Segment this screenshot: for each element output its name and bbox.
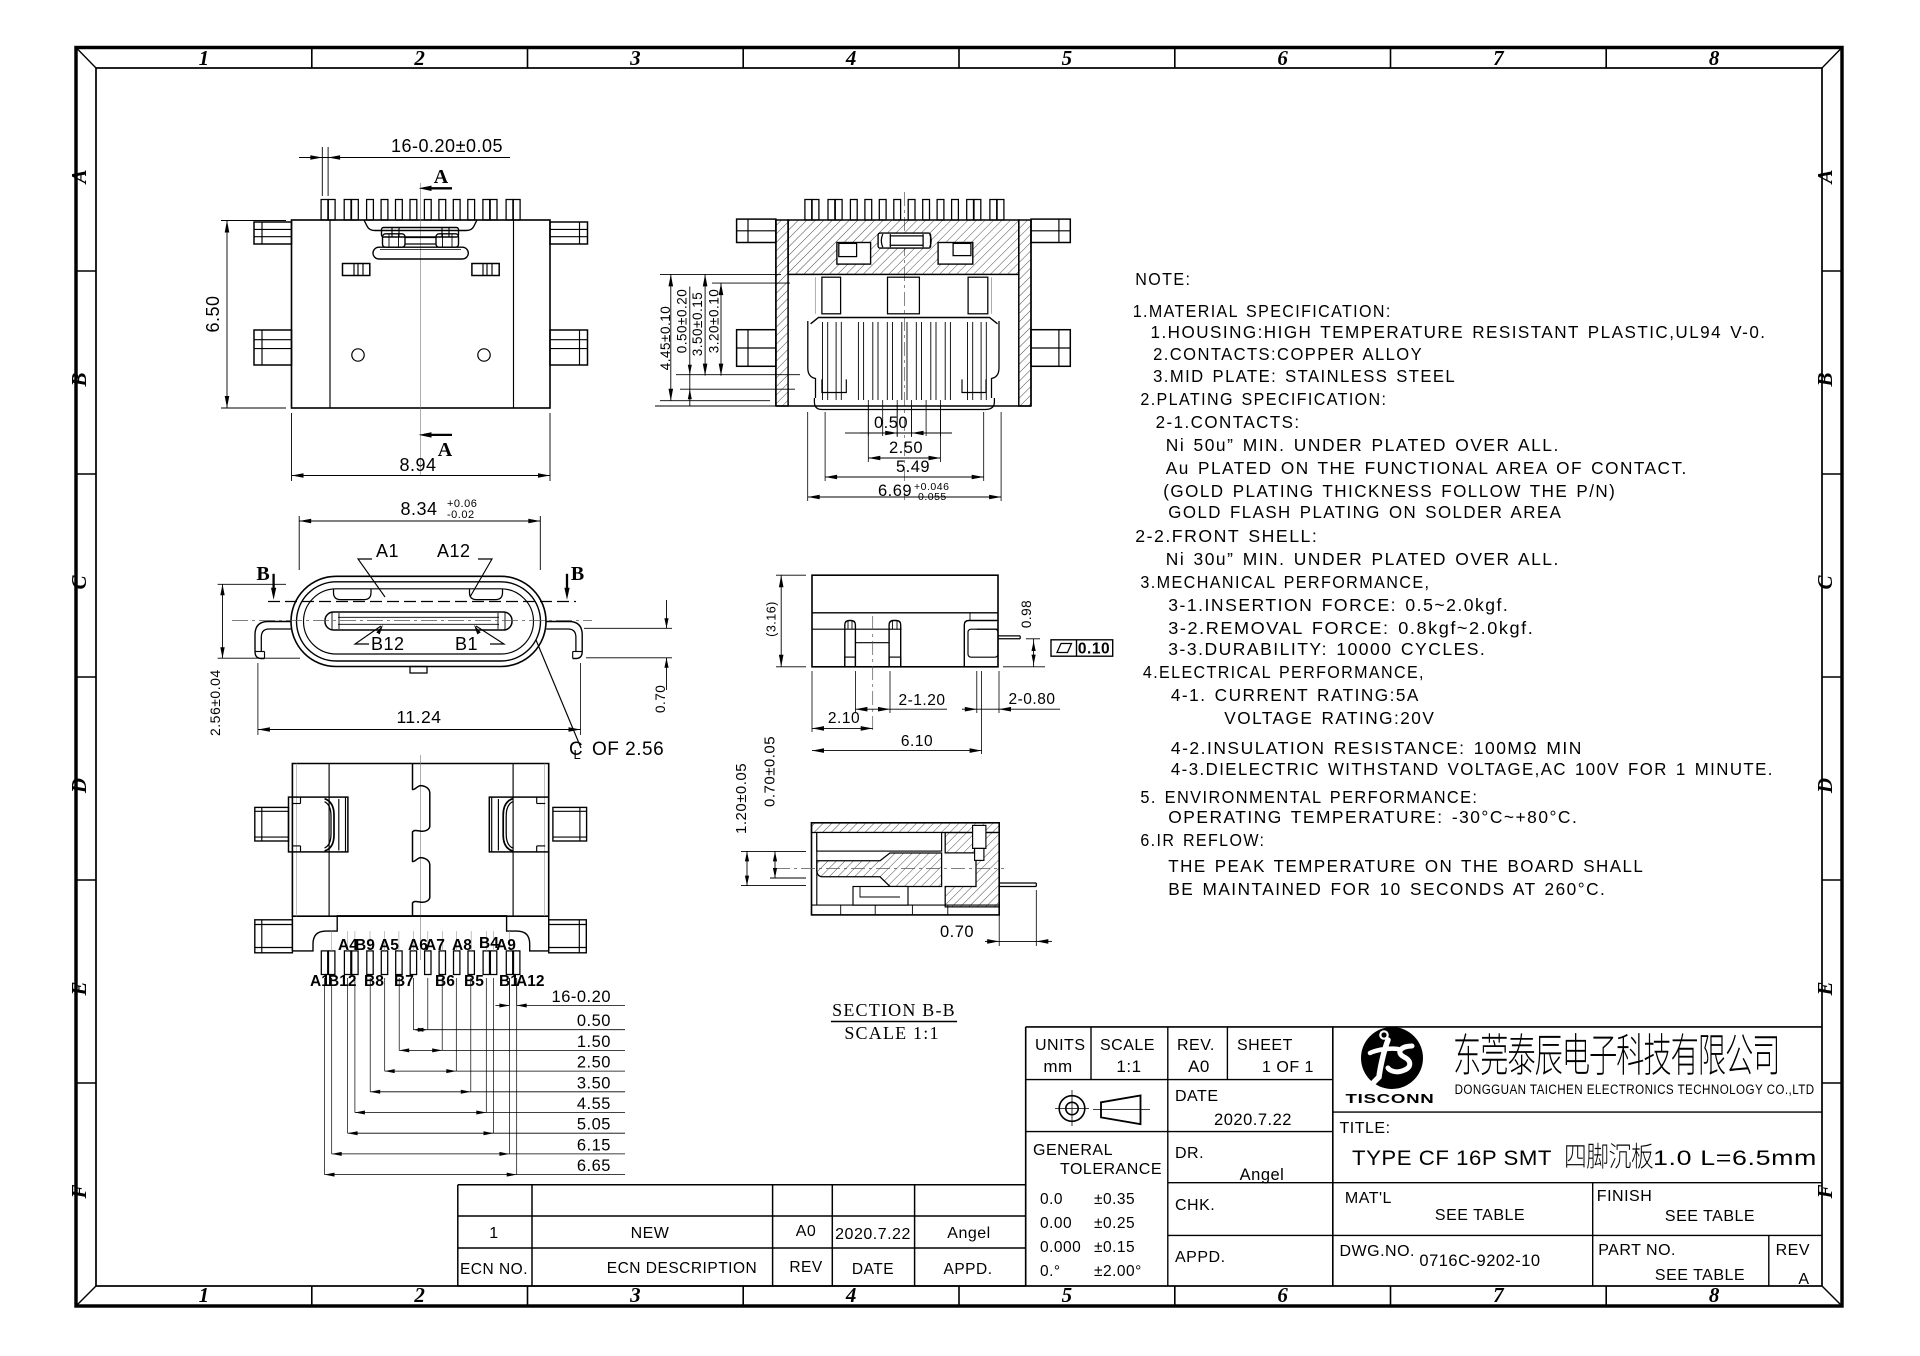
svg-text:0.000: 0.000 <box>1040 1239 1081 1256</box>
svg-text:1 OF 1: 1 OF 1 <box>1262 1059 1314 1076</box>
svg-text:6.50: 6.50 <box>203 295 223 332</box>
svg-text:OPERATING TEMPERATURE: -30°C: OPERATING TEMPERATURE: -30°C~+80°C. <box>1168 807 1578 827</box>
svg-text:0.70: 0.70 <box>653 685 668 713</box>
svg-text:2-2.FRONT SHELL:: 2-2.FRONT SHELL: <box>1135 526 1318 546</box>
svg-text:SEE TABLE: SEE TABLE <box>1655 1267 1745 1284</box>
svg-text:A5: A5 <box>379 937 399 954</box>
svg-text:8.34: 8.34 <box>400 499 437 519</box>
svg-text:5: 5 <box>1062 1283 1073 1307</box>
svg-text:APPD.: APPD. <box>943 1261 992 1278</box>
svg-text:F: F <box>1813 1184 1837 1199</box>
svg-text:3-2.REMOVAL FORCE: 0.8kgf~2.: 3-2.REMOVAL FORCE: 0.8kgf~2.0kgf. <box>1168 618 1534 638</box>
svg-text:UNITS: UNITS <box>1035 1037 1086 1054</box>
svg-text:Au PLATED ON THE FUNCTIONA: Au PLATED ON THE FUNCTIONAL AREA OF CONT… <box>1166 458 1688 478</box>
svg-text:BE MAINTAINED FOR 10 SECON: BE MAINTAINED FOR 10 SECONDS AT 260°C. <box>1168 879 1606 899</box>
svg-text:8: 8 <box>1709 46 1720 70</box>
svg-text:2: 2 <box>413 1283 425 1307</box>
svg-text:0.50: 0.50 <box>874 414 908 432</box>
svg-text:REV.: REV. <box>1177 1037 1215 1054</box>
svg-text:0716C-9202-10: 0716C-9202-10 <box>1419 1252 1540 1270</box>
svg-text:REV: REV <box>1776 1242 1810 1259</box>
svg-text:0.98: 0.98 <box>1019 600 1034 628</box>
svg-text:3.MECHANICAL PERFORMANCE,: 3.MECHANICAL PERFORMANCE, <box>1140 572 1430 592</box>
svg-text:A12: A12 <box>516 973 544 990</box>
svg-text:B: B <box>67 372 91 387</box>
svg-text:4-3.DIELECTRIC WITHSTAND VOL: 4-3.DIELECTRIC WITHSTAND VOLTAGE,AC 100V… <box>1171 759 1774 779</box>
svg-text:4: 4 <box>845 46 857 70</box>
svg-text:mm: mm <box>1043 1057 1072 1076</box>
svg-text:OF 2.56: OF 2.56 <box>592 739 664 760</box>
svg-text:GENERAL: GENERAL <box>1033 1142 1113 1159</box>
svg-text:SCALE: SCALE <box>1100 1037 1155 1054</box>
svg-text:1: 1 <box>199 46 210 70</box>
svg-text:-0.02: -0.02 <box>447 509 475 521</box>
svg-text:6: 6 <box>1277 46 1288 70</box>
svg-text:4-1. CURRENT RATING:5A: 4-1. CURRENT RATING:5A <box>1171 685 1420 705</box>
svg-text:B12: B12 <box>371 634 405 654</box>
svg-text:FINISH: FINISH <box>1597 1188 1652 1205</box>
svg-text:B1: B1 <box>455 634 478 654</box>
svg-text:A: A <box>434 166 449 188</box>
svg-text:TOLERANCE: TOLERANCE <box>1060 1161 1162 1178</box>
svg-text:2: 2 <box>413 46 425 70</box>
svg-text:3.20±0.10: 3.20±0.10 <box>706 289 721 353</box>
svg-text:7: 7 <box>1493 46 1505 70</box>
svg-text:8: 8 <box>1709 1283 1720 1307</box>
svg-text:±0.25: ±0.25 <box>1094 1215 1135 1232</box>
svg-text:5.05: 5.05 <box>577 1116 611 1134</box>
svg-text:2-1.20: 2-1.20 <box>899 692 946 709</box>
svg-text:6.69: 6.69 <box>878 482 912 500</box>
svg-text:1.HOUSING:HIGH TEMPERATURE R: 1.HOUSING:HIGH TEMPERATURE RESISTANT PLA… <box>1151 322 1767 342</box>
svg-text:REV: REV <box>789 1259 823 1276</box>
svg-text:2-0.80: 2-0.80 <box>1009 691 1056 708</box>
svg-text:(GOLD PLATING THICKNESS FOL: (GOLD PLATING THICKNESS FOLLOW THE P/N) <box>1163 481 1616 501</box>
svg-text:NOTE:: NOTE: <box>1135 269 1191 289</box>
svg-text:4.ELECTRICAL PERFORMANCE,: 4.ELECTRICAL PERFORMANCE, <box>1143 662 1425 682</box>
svg-text:Angel: Angel <box>947 1225 990 1242</box>
svg-text:3.50: 3.50 <box>577 1074 611 1092</box>
svg-text:L: L <box>574 747 582 762</box>
svg-text:3: 3 <box>629 46 641 70</box>
svg-text:8.94: 8.94 <box>399 455 436 475</box>
svg-text:16-0.20±0.05: 16-0.20±0.05 <box>391 136 503 156</box>
svg-text:A: A <box>1798 1271 1809 1288</box>
svg-text:SEE TABLE: SEE TABLE <box>1435 1207 1525 1224</box>
svg-text:0.10: 0.10 <box>1078 641 1110 658</box>
svg-text:2-1.CONTACTS:: 2-1.CONTACTS: <box>1156 412 1301 432</box>
svg-text:1.0 L=6.5mm: 1.0 L=6.5mm <box>1653 1147 1817 1170</box>
svg-text:B7: B7 <box>394 973 414 990</box>
svg-text:ECN NO.: ECN NO. <box>460 1261 528 1278</box>
svg-text:2.PLATING SPECIFICATION:: 2.PLATING SPECIFICATION: <box>1140 389 1387 409</box>
svg-text:B5: B5 <box>464 973 484 990</box>
svg-text:DONGGUAN TAICHEN ELECTRONICS: DONGGUAN TAICHEN ELECTRONICS TECHNOLOGY … <box>1455 1082 1815 1097</box>
svg-text:0.70±0.05: 0.70±0.05 <box>762 736 779 807</box>
svg-text:Ni 50u” MIN. UNDER PLATED: Ni 50u” MIN. UNDER PLATED OVER ALL. <box>1166 435 1560 455</box>
svg-text:ECN DESCRIPTION: ECN DESCRIPTION <box>607 1260 757 1277</box>
svg-text:0.50±0.20: 0.50±0.20 <box>675 289 690 353</box>
svg-text:B9: B9 <box>355 937 375 954</box>
svg-text:GOLD FLASH PLATING ON SOLD: GOLD FLASH PLATING ON SOLDER AREA <box>1168 502 1562 522</box>
svg-text:2.56±0.04: 2.56±0.04 <box>207 669 223 736</box>
svg-text:0.50: 0.50 <box>577 1012 611 1030</box>
svg-text:A7: A7 <box>425 937 445 954</box>
svg-text:TYPE CF 16P SMT: TYPE CF 16P SMT <box>1352 1147 1552 1170</box>
svg-text:MAT'L: MAT'L <box>1345 1190 1392 1207</box>
svg-text:1:1: 1:1 <box>1116 1057 1141 1076</box>
svg-text:2.50: 2.50 <box>577 1054 611 1072</box>
svg-text:2020.7.22: 2020.7.22 <box>835 1226 911 1243</box>
svg-text:6.65: 6.65 <box>577 1157 611 1175</box>
svg-text:F: F <box>67 1184 91 1199</box>
svg-text:DATE: DATE <box>1175 1088 1218 1105</box>
svg-text:C: C <box>67 575 91 590</box>
svg-text:6: 6 <box>1277 1283 1288 1307</box>
svg-text:3-3.DURABILITY: 10000 CYCLES: 3-3.DURABILITY: 10000 CYCLES. <box>1168 639 1486 659</box>
svg-text:6.15: 6.15 <box>577 1136 611 1154</box>
svg-text:1.MATERIAL SPECIFICATION:: 1.MATERIAL SPECIFICATION: <box>1133 301 1392 321</box>
svg-text:DWG.NO.: DWG.NO. <box>1340 1243 1416 1260</box>
svg-text:A: A <box>67 169 91 185</box>
svg-text:DR.: DR. <box>1175 1145 1204 1162</box>
svg-text:6.10: 6.10 <box>901 733 933 750</box>
svg-text:2.10: 2.10 <box>828 710 860 727</box>
svg-text:A9: A9 <box>496 937 516 954</box>
svg-text:3-1.INSERTION FORCE: 0.5~2.0: 3-1.INSERTION FORCE: 0.5~2.0kgf. <box>1168 595 1509 615</box>
svg-text:0.°: 0.° <box>1040 1263 1061 1280</box>
svg-text:APPD.: APPD. <box>1175 1249 1226 1266</box>
svg-text:0.70: 0.70 <box>940 923 974 941</box>
svg-text:(3.16): (3.16) <box>765 601 779 637</box>
svg-text:2020.7.22: 2020.7.22 <box>1214 1111 1292 1129</box>
svg-text:SHEET: SHEET <box>1237 1037 1293 1054</box>
svg-text:A: A <box>438 439 453 461</box>
svg-text:16-0.20: 16-0.20 <box>552 988 611 1006</box>
svg-text:11.24: 11.24 <box>397 707 442 727</box>
svg-text:D: D <box>67 778 91 794</box>
svg-text:±2.00°: ±2.00° <box>1094 1263 1142 1280</box>
svg-text:B6: B6 <box>435 973 455 990</box>
svg-text:E: E <box>67 981 91 996</box>
svg-text:B8: B8 <box>364 973 384 990</box>
svg-text:4.45±0.10: 4.45±0.10 <box>658 306 673 370</box>
svg-text:1: 1 <box>489 1225 498 1242</box>
svg-text:Ni 30u” MIN. UNDER PLATED: Ni 30u” MIN. UNDER PLATED OVER ALL. <box>1166 549 1560 569</box>
svg-text:VOLTAGE RATING:20V: VOLTAGE RATING:20V <box>1224 708 1435 728</box>
svg-text:B: B <box>256 563 269 585</box>
svg-text:A0: A0 <box>1188 1057 1210 1076</box>
svg-text:0.0: 0.0 <box>1040 1191 1063 1208</box>
svg-text:TITLE:: TITLE: <box>1340 1120 1391 1137</box>
svg-text:2.CONTACTS:COPPER ALLOY: 2.CONTACTS:COPPER ALLOY <box>1153 344 1423 364</box>
svg-text:5.49: 5.49 <box>896 458 930 476</box>
svg-text:D: D <box>1813 778 1837 794</box>
svg-text:PART NO.: PART NO. <box>1598 1242 1676 1259</box>
svg-text:A1: A1 <box>376 541 399 561</box>
svg-text:CHK.: CHK. <box>1175 1197 1215 1214</box>
svg-text:THE PEAK TEMPERATURE ON TH: THE PEAK TEMPERATURE ON THE BOARD SHALL <box>1168 856 1644 876</box>
svg-text:C: C <box>1813 575 1837 590</box>
svg-text:TISCONN: TISCONN <box>1346 1091 1435 1106</box>
svg-text:2.50: 2.50 <box>889 439 923 457</box>
svg-text:1.50: 1.50 <box>577 1033 611 1051</box>
svg-text:B: B <box>1813 372 1837 387</box>
svg-text:3.50±0.15: 3.50±0.15 <box>690 292 705 356</box>
svg-text:NEW: NEW <box>631 1225 670 1242</box>
svg-text:B12: B12 <box>328 973 356 990</box>
svg-text:0.00: 0.00 <box>1040 1215 1072 1232</box>
svg-text:SCALE 1:1: SCALE 1:1 <box>844 1023 939 1043</box>
svg-text:4.55: 4.55 <box>577 1095 611 1113</box>
svg-text:4-2.INSULATION RESISTANCE: 1: 4-2.INSULATION RESISTANCE: 100MΩ MIN <box>1171 738 1583 758</box>
svg-text:±0.15: ±0.15 <box>1094 1239 1135 1256</box>
svg-text:A12: A12 <box>437 541 471 561</box>
svg-text:5: 5 <box>1062 46 1073 70</box>
svg-text:±0.35: ±0.35 <box>1094 1191 1135 1208</box>
svg-text:A8: A8 <box>452 937 472 954</box>
svg-text:3.MID PLATE: STAINLESS STEE: 3.MID PLATE: STAINLESS STEEL <box>1153 366 1456 386</box>
svg-text:E: E <box>1813 981 1837 996</box>
svg-text:SECTION B-B: SECTION B-B <box>832 1000 956 1020</box>
svg-text:DATE: DATE <box>852 1261 894 1278</box>
svg-text:7: 7 <box>1493 1283 1505 1307</box>
svg-text:SEE TABLE: SEE TABLE <box>1665 1208 1755 1225</box>
svg-text:1: 1 <box>199 1283 210 1307</box>
svg-text:-0.055: -0.055 <box>914 491 947 503</box>
svg-text:6.IR REFLOW:: 6.IR REFLOW: <box>1140 830 1265 850</box>
svg-text:5. ENVIRONMENTAL PERFORMANCE: 5. ENVIRONMENTAL PERFORMANCE: <box>1140 787 1478 807</box>
svg-text:A0: A0 <box>796 1223 817 1240</box>
svg-text:B: B <box>571 563 584 585</box>
svg-text:A: A <box>1813 169 1837 185</box>
svg-text:Angel: Angel <box>1240 1166 1285 1184</box>
svg-text:1.20±0.05: 1.20±0.05 <box>733 763 750 834</box>
